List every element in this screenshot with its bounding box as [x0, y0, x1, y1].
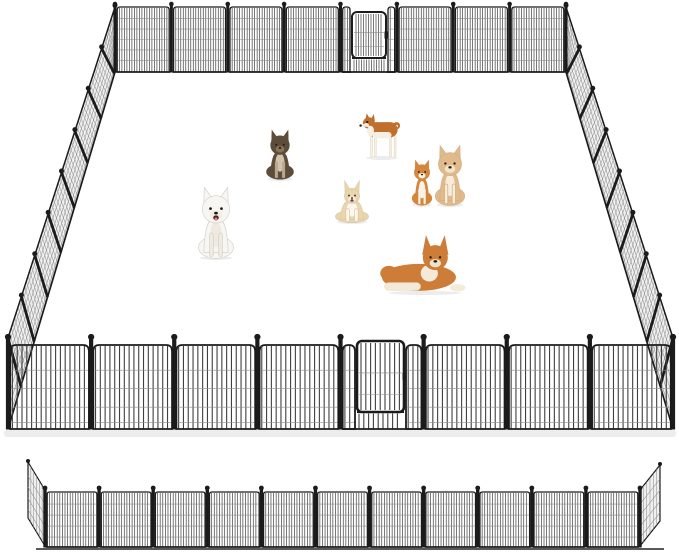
- display-row-panels-finial: [529, 486, 534, 491]
- pen-back-wall-post: [114, 6, 117, 73]
- pen-left-wall-finial: [72, 127, 77, 132]
- pen-back-wall-post: [226, 6, 229, 73]
- pen-front-wall-post: [255, 339, 259, 430]
- pen-left-wall-finial: [99, 44, 104, 49]
- pen-back-wall-post: [395, 6, 398, 73]
- display-row-panels-finial: [421, 486, 426, 491]
- dog-shiba-inu: [359, 113, 400, 160]
- pen-front-wall-post: [422, 339, 426, 430]
- dog-chihuahua-puppy: [412, 160, 432, 207]
- pen-right-wall-finial: [617, 169, 622, 174]
- display-row-panels-post: [151, 490, 154, 548]
- pen-left-wall-finial: [19, 293, 24, 298]
- pen-back-wall-finial: [507, 2, 512, 7]
- pen-right-wall: [564, 3, 676, 429]
- display-row-panels-finial: [584, 486, 589, 491]
- display-row-panels: [43, 486, 643, 548]
- display-row-panels-finial: [367, 486, 372, 491]
- display-row-panels-finial: [151, 486, 156, 491]
- display-row-panels-post: [422, 490, 425, 548]
- dog-shadow: [389, 291, 461, 295]
- display-row-right-wing-finial: [658, 462, 662, 466]
- dog-samoyed: [199, 187, 234, 260]
- display-row: [26, 459, 664, 549]
- pen-back-wall-finial: [395, 2, 400, 7]
- display-row-panels-finial: [313, 486, 318, 491]
- display-row-panels-post: [206, 490, 209, 548]
- display-row-panels-finial: [205, 486, 210, 491]
- display-row-panels-post: [584, 490, 587, 548]
- pen-right-wall-finial: [590, 86, 595, 91]
- display-row-panels-post: [476, 490, 479, 548]
- dogs: [199, 113, 466, 295]
- pen-front-wall-gate: [342, 341, 423, 429]
- pen-right-wall-finial: [657, 293, 662, 298]
- pen-back-wall-post: [508, 6, 511, 73]
- product-image: Black metal wire dog playpen arranged as…: [0, 0, 679, 553]
- pen-back-wall-finial: [282, 2, 287, 7]
- pen-back-wall-post: [565, 6, 568, 73]
- pen-front-wall-post: [172, 339, 176, 430]
- pen-back-wall-gate: [342, 7, 396, 72]
- pen-back-wall-post: [452, 6, 455, 73]
- pen-left-wall-finial: [59, 169, 64, 174]
- pen-front-wall-post: [6, 339, 10, 430]
- dog-spitz-lying: [380, 235, 465, 295]
- pen-back-wall-gate-latch: [385, 31, 388, 39]
- display-row-panels-post: [97, 490, 100, 548]
- pen-right-wall-finial: [604, 127, 609, 132]
- display-row-panels-post: [260, 490, 263, 548]
- pen-back-wall-finial: [169, 2, 174, 7]
- pen-back-wall-post: [170, 6, 173, 73]
- pen-front-wall-finial: [670, 334, 676, 340]
- display-row-panels-post: [530, 490, 533, 548]
- display-row-panels-post: [314, 490, 317, 548]
- pen-right-wall-finial: [630, 210, 635, 215]
- dog-corgi: [335, 181, 368, 224]
- pen-front-wall-finial: [5, 334, 11, 340]
- pen-back-wall-finial: [451, 2, 456, 7]
- dog-longhair-chihuahua: [266, 130, 294, 181]
- pen-back-wall-finial: [225, 2, 230, 7]
- pen-front-wall-finial: [337, 334, 343, 340]
- pen-left-wall-finial: [86, 86, 91, 91]
- pen-front-wall-finial: [254, 334, 260, 340]
- pen-right-wall-finial: [644, 251, 649, 256]
- pen-front-wall-post: [588, 339, 592, 430]
- display-row-panels-finial: [43, 486, 48, 491]
- pen-left-wall-finial: [32, 251, 37, 256]
- display-row-panels-post: [43, 490, 46, 548]
- display-row-panels-post: [368, 490, 371, 548]
- pen-front-wall-gate-latch: [403, 373, 406, 381]
- pen-front-wall: [5, 334, 676, 430]
- pen-back-wall-post: [283, 6, 286, 73]
- pen-front-wall-finial: [171, 334, 177, 340]
- display-row-panels-post: [638, 490, 641, 548]
- pen-back-wall-post: [339, 6, 342, 73]
- display-row-left-wing-finial: [26, 459, 30, 463]
- playpen-scene: [0, 0, 679, 553]
- pen-front-wall-post: [89, 339, 93, 430]
- display-row-panels-finial: [97, 486, 102, 491]
- pen-front-wall-post: [338, 339, 342, 430]
- pen-left-wall-mesh: [8, 7, 115, 429]
- display-row-right-wing: [640, 462, 662, 546]
- pen-front-wall-finial: [421, 334, 427, 340]
- pen-back-wall-finial: [338, 2, 343, 7]
- dog-shiba-puppy: [435, 146, 464, 207]
- pen-front-wall-finial: [587, 334, 593, 340]
- pen-front-shadow: [4, 430, 676, 437]
- display-row-panels-finial: [259, 486, 264, 491]
- display-row-left-wing: [26, 459, 45, 546]
- pen-front-wall-post: [505, 339, 509, 430]
- pen-left-wall-finial: [46, 210, 51, 215]
- pen-back-wall-finial: [113, 2, 118, 7]
- pen-front-wall-post: [671, 339, 675, 430]
- display-row-panels-finial: [475, 486, 480, 491]
- pen-back-wall-finial: [564, 2, 569, 7]
- pen-back-wall: [113, 2, 569, 73]
- display-row-panels-finial: [638, 486, 643, 491]
- pen-front-wall-finial: [88, 334, 94, 340]
- pen-right-wall-finial: [577, 44, 582, 49]
- pen-front-wall-finial: [504, 334, 510, 340]
